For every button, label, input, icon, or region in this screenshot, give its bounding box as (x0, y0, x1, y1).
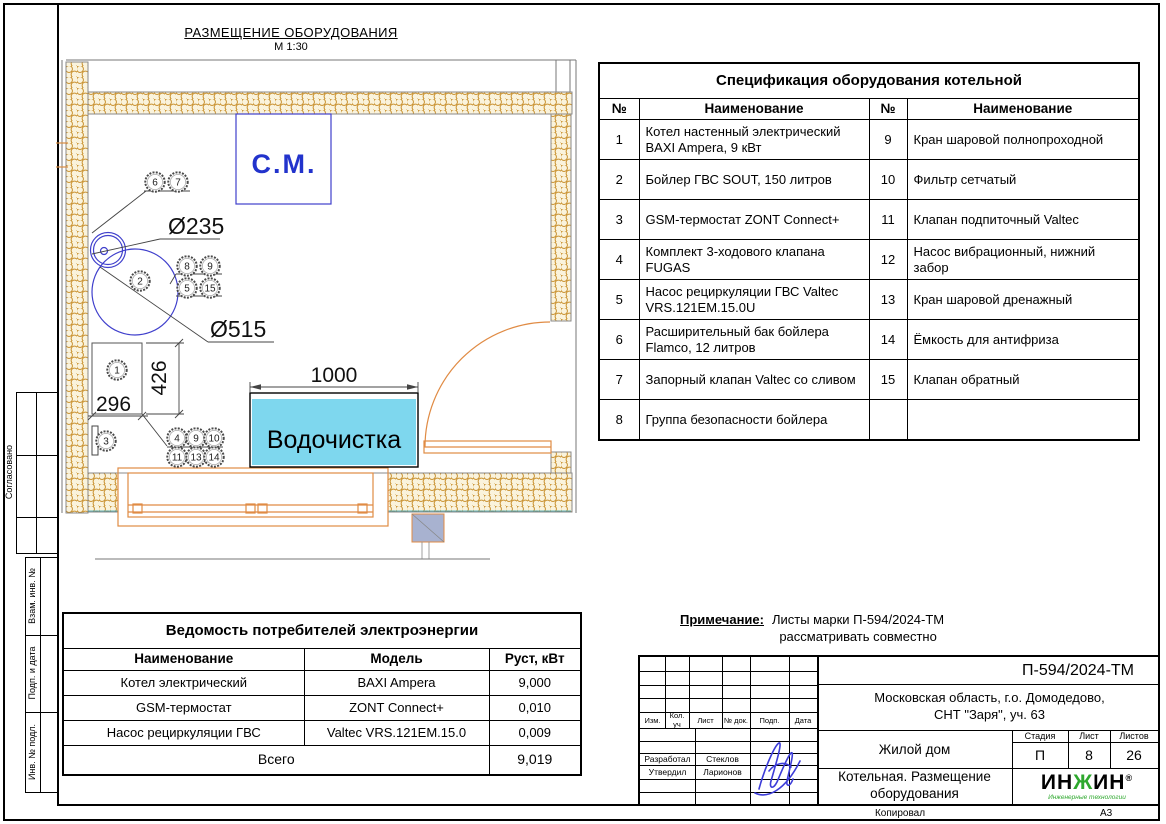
frame-outer-bottom (3, 819, 1160, 821)
logo-text: ИНЖИН® (1041, 772, 1133, 793)
tb-approved-name: Ларионов (695, 765, 750, 779)
power-row: Котел электрическийBAXI Ampera9,000 (63, 671, 581, 696)
company-logo: ИНЖИН® Инженерные технологии (1012, 768, 1162, 804)
copied-label: Копировал (850, 808, 950, 819)
stamp-label-soglasovano: Согласовано (3, 392, 15, 552)
stamp-label-inv: Инв. № подл. (26, 713, 38, 791)
power-row: Насос рециркуляции ГВСValtec VRS.121EM.1… (63, 721, 581, 746)
boiler-tank-circle (92, 249, 178, 335)
tb-header-koluch: Кол. уч (665, 712, 689, 728)
door (424, 322, 551, 453)
svg-text:8: 8 (184, 262, 190, 273)
spec-row: 6Расширительный бак бойлера Flamco, 12 л… (599, 320, 1139, 360)
tb-stage-label: Стадия (1012, 730, 1068, 742)
format-label: А3 (1100, 808, 1112, 819)
title-block: Изм. Кол. уч Лист № док. Подп. Дата Разр… (638, 655, 1160, 806)
washing-machine-label: С.М. (252, 149, 317, 179)
dimension-426: 426 (146, 339, 184, 418)
callout-15: 15 (200, 278, 219, 297)
svg-text:9: 9 (207, 262, 213, 273)
callout-9: 9 (200, 256, 219, 275)
power-header-name: Наименование (63, 649, 304, 671)
tb-sheet-title: Котельная. Размещение оборудования (817, 768, 1012, 804)
spec-row: 1Котел настенный электрический BAXI Ampe… (599, 120, 1139, 160)
callout-13: 13 (186, 447, 205, 466)
tb-doc-code: П-594/2024-ТМ (817, 657, 1148, 684)
logo-subtitle: Инженерные технологии (1048, 794, 1126, 801)
tb-developed-label: Разработал (640, 753, 695, 765)
svg-text:13: 13 (190, 453, 202, 464)
svg-text:6: 6 (152, 178, 158, 189)
callout-5: 5 (177, 278, 196, 297)
spec-row: 4Комплект 3-ходового клапана FUGAS12Насо… (599, 240, 1139, 280)
spec-row: 2Бойлер ГВС SOUT, 150 литров10Фильтр сет… (599, 160, 1139, 200)
callout-10: 10 (204, 428, 223, 447)
svg-text:Ø235: Ø235 (168, 213, 224, 239)
svg-text:426: 426 (148, 360, 171, 395)
frame-top (3, 3, 1160, 5)
power-total-label: Всего (63, 746, 489, 776)
power-total-value: 9,019 (489, 746, 581, 776)
signature (745, 727, 809, 803)
callout-1: 1 (107, 360, 126, 379)
tb-location: Московская область, г.о. Домодедово, СНТ… (817, 684, 1162, 730)
tb-sheets-value: 26 (1110, 742, 1158, 768)
spec-table: Спецификация оборудования котельной № На… (598, 62, 1140, 441)
spec-row: 8Группа безопасности бойлера (599, 400, 1139, 441)
tb-sheet-value: 8 (1068, 742, 1110, 768)
svg-text:14: 14 (208, 453, 220, 464)
tb-header-list: Лист (689, 712, 722, 728)
dimension-d515: Ø515 (100, 267, 274, 342)
plan-title: РАЗМЕЩЕНИЕ ОБОРУДОВАНИЯ (166, 25, 416, 40)
spec-row: 5Насос рециркуляции ГВС Valtec VRS.121EM… (599, 280, 1139, 320)
water-treatment-label: Водочистка (267, 426, 401, 454)
power-header-model: Модель (304, 649, 489, 671)
window (118, 468, 388, 526)
spec-header-num1: № (599, 99, 639, 120)
stamp-line (25, 792, 57, 793)
callout-4: 4 (167, 428, 186, 447)
spec-row: 3GSM-термостат ZONT Connect+11Клапан под… (599, 200, 1139, 240)
svg-text:1: 1 (114, 366, 120, 377)
spec-header-name1: Наименование (639, 99, 869, 120)
tb-stage-value: П (1012, 742, 1068, 768)
callout-11: 11 (167, 447, 186, 466)
note: Примечание: Листы марки П-594/2024-ТМ ра… (680, 612, 944, 646)
tb-header-izm: Изм. (640, 712, 665, 728)
floor-plan: Водочистка 426 296 1000 Ø235 Ø515 (40, 50, 585, 570)
svg-text:3: 3 (103, 437, 109, 448)
note-label: Примечание: (680, 612, 764, 646)
callout-2: 2 (130, 271, 149, 290)
dimension-1000: 1000 (250, 364, 418, 393)
spec-row: 7Запорный клапан Valtec со сливом15Клапа… (599, 360, 1139, 400)
tb-sheet-label: Лист (1068, 730, 1110, 742)
svg-text:5: 5 (184, 284, 190, 295)
svg-text:296: 296 (96, 393, 131, 416)
power-table-title: Ведомость потребителей электроэнергии (63, 613, 581, 649)
svg-text:Ø515: Ø515 (210, 316, 266, 342)
column (412, 514, 444, 559)
power-header-kw: Руст, кВт (489, 649, 581, 671)
callout-8: 8 (177, 256, 196, 275)
svg-text:11: 11 (172, 453, 183, 464)
spec-header-num2: № (869, 99, 907, 120)
tb-header-data: Дата (789, 712, 817, 728)
svg-text:1000: 1000 (311, 364, 358, 387)
tb-approved-label: Утвердил (640, 765, 695, 779)
spec-table-title: Спецификация оборудования котельной (599, 63, 1139, 99)
power-row: GSM-термостатZONT Connect+0,010 (63, 696, 581, 721)
callout-9b: 9 (186, 428, 205, 447)
svg-text:7: 7 (175, 178, 181, 189)
tb-sheets-label: Листов (1110, 730, 1158, 742)
note-text: Листы марки П-594/2024-ТМ рассматривать … (772, 612, 944, 646)
svg-text:4: 4 (174, 434, 180, 445)
expansion-tank-circle (91, 233, 126, 268)
stamp-label-vzam: Взам. инв. № (26, 558, 38, 634)
stamp-label-podp: Подп. и дата (26, 635, 38, 711)
callout-14: 14 (204, 447, 223, 466)
spec-header-name2: Наименование (907, 99, 1139, 120)
water-treatment-box: Водочистка (250, 393, 418, 467)
stamp-line (36, 392, 37, 554)
power-total-row: Всего9,019 (63, 746, 581, 776)
svg-text:2: 2 (137, 277, 143, 288)
tb-developed-name: Стеклов (695, 753, 750, 765)
callout-6: 6 (145, 172, 164, 191)
stamp-line (16, 392, 17, 554)
svg-text:10: 10 (208, 434, 220, 445)
tb-header-ndok: № док. (722, 712, 750, 728)
svg-text:15: 15 (204, 284, 216, 295)
tb-header-podp: Подп. (750, 712, 789, 728)
tb-object-name: Жилой дом (817, 730, 1012, 768)
svg-text:9: 9 (193, 434, 199, 445)
callout-7: 7 (168, 172, 187, 191)
power-table: Ведомость потребителей электроэнергии На… (62, 612, 582, 776)
stamp-line (40, 557, 41, 792)
callout-3: 3 (96, 431, 115, 450)
